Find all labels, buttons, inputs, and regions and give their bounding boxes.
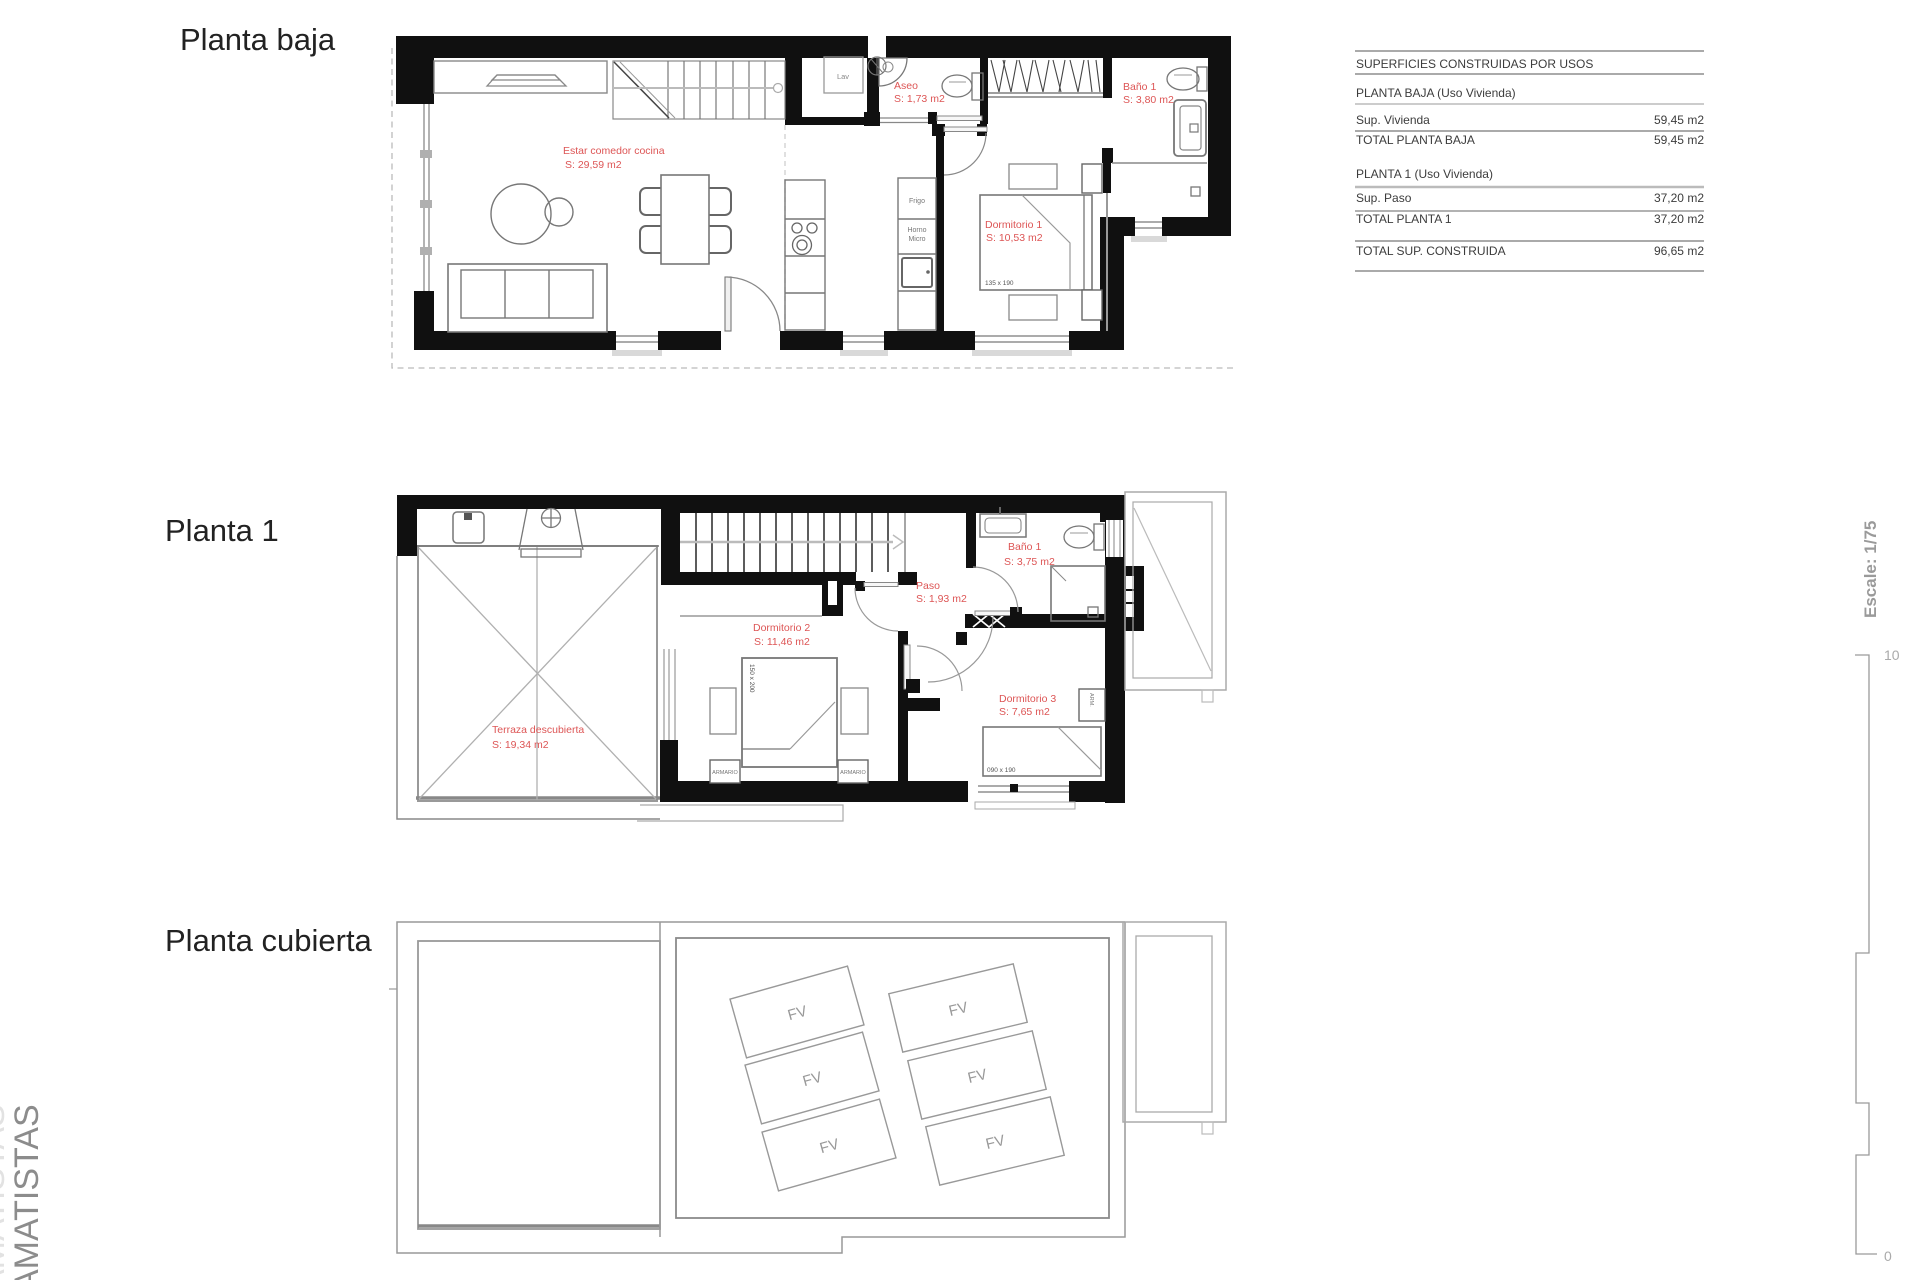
svg-text:59,45 m2: 59,45 m2 [1654,133,1704,147]
svg-text:Micro: Micro [908,236,925,243]
svg-text:TOTAL PLANTA 1: TOTAL PLANTA 1 [1356,212,1452,226]
svg-text:S: 11,46 m2: S: 11,46 m2 [754,636,810,648]
svg-text:SUPERFICIES CONSTRUIDAS POR US: SUPERFICIES CONSTRUIDAS POR USOS [1356,57,1593,71]
svg-text:Planta 1: Planta 1 [165,513,279,548]
svg-text:S: 3,80 m2: S: 3,80 m2 [1123,94,1174,106]
svg-text:S: 19,34 m2: S: 19,34 m2 [492,739,549,751]
svg-text:0: 0 [1884,1248,1892,1264]
svg-text:Estar comedor cocina: Estar comedor cocina [563,145,665,157]
svg-text:135 x 190: 135 x 190 [985,280,1014,287]
svg-text:Escale: 1/75: Escale: 1/75 [1861,521,1880,618]
svg-text:PLANTA 1 (Uso Vivienda): PLANTA 1 (Uso Vivienda) [1356,167,1493,181]
svg-text:ARMARIO: ARMARIO [840,770,866,776]
svg-text:S: 3,75 m2: S: 3,75 m2 [1004,556,1055,568]
svg-text:Aseo: Aseo [894,80,918,92]
svg-text:Sup. Paso: Sup. Paso [1356,191,1412,205]
svg-text:Lav: Lav [837,72,849,81]
svg-text:Dormitorio 2: Dormitorio 2 [753,622,810,634]
svg-text:090 x 190: 090 x 190 [987,767,1016,774]
svg-text:S: 1,93 m2: S: 1,93 m2 [916,593,967,605]
svg-text:TOTAL SUP. CONSTRUIDA: TOTAL SUP. CONSTRUIDA [1356,244,1506,258]
svg-text:Dormitorio 1: Dormitorio 1 [985,219,1042,231]
svg-text:96,65 m2: 96,65 m2 [1654,244,1704,258]
svg-text:Baño 1: Baño 1 [1008,541,1041,553]
svg-text:S: 7,65 m2: S: 7,65 m2 [999,706,1050,718]
svg-text:37,20 m2: 37,20 m2 [1654,212,1704,226]
svg-text:Horno: Horno [907,227,926,234]
svg-text:Terraza descubierta: Terraza descubierta [492,724,584,736]
svg-text:Planta baja: Planta baja [180,22,336,57]
svg-text:Planta cubierta: Planta cubierta [165,923,373,958]
svg-text:TOTAL PLANTA BAJA: TOTAL PLANTA BAJA [1356,133,1475,147]
svg-text:10: 10 [1884,647,1900,663]
svg-text:150 x 200: 150 x 200 [748,664,755,693]
svg-text:37,20 m2: 37,20 m2 [1654,191,1704,205]
svg-text:59,45 m2: 59,45 m2 [1654,113,1704,127]
svg-text:ARM.: ARM. [1088,693,1094,707]
svg-text:ARMARIO: ARMARIO [712,770,738,776]
svg-text:Baño 1: Baño 1 [1123,81,1156,93]
svg-text:Sup. Vivienda: Sup. Vivienda [1356,113,1430,127]
svg-text:AMATISTAS: AMATISTAS [8,1104,46,1280]
svg-text:S: 29,59 m2: S: 29,59 m2 [565,159,622,171]
svg-text:S: 1,73 m2: S: 1,73 m2 [894,93,945,105]
svg-text:Frigo: Frigo [909,198,925,205]
svg-text:S: 10,53 m2: S: 10,53 m2 [986,232,1043,244]
svg-text:PLANTA BAJA (Uso Vivienda): PLANTA BAJA (Uso Vivienda) [1356,86,1516,100]
svg-text:Dormitorio 3: Dormitorio 3 [999,693,1056,705]
svg-text:Paso: Paso [916,580,940,592]
